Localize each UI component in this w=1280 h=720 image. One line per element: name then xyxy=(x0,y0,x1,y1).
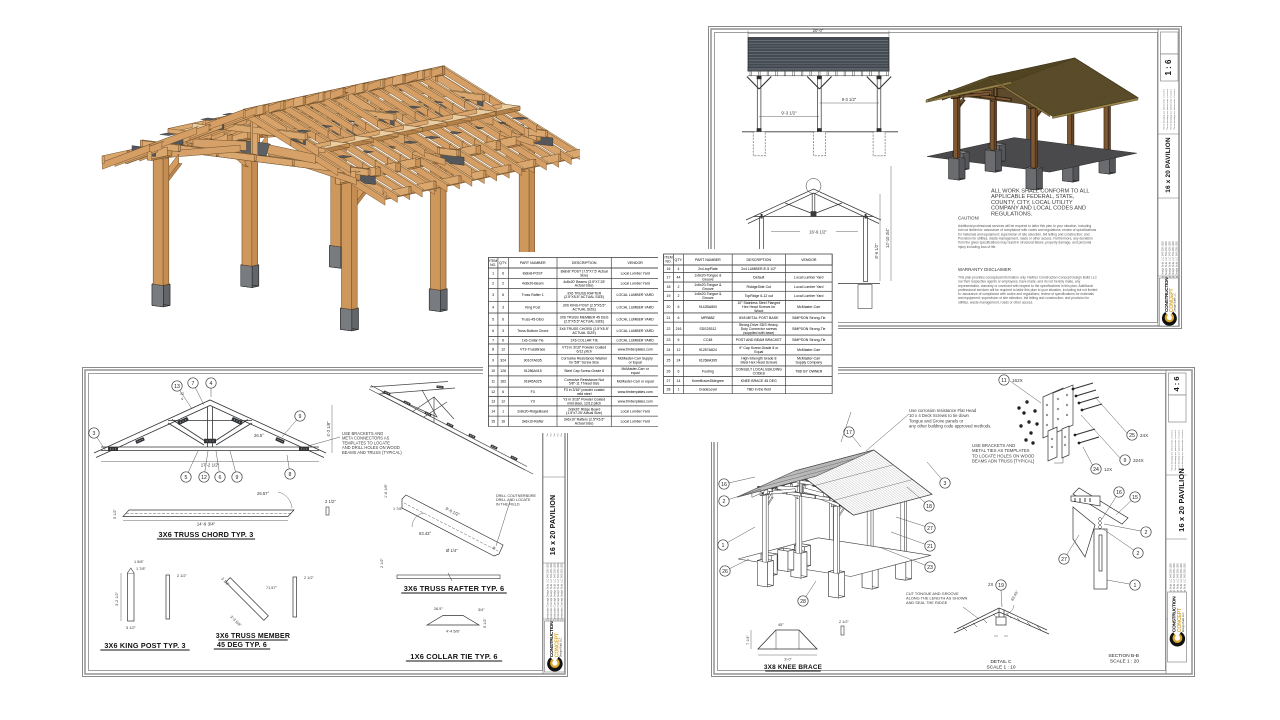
svg-text:9126BA395: 9126BA395 xyxy=(699,359,717,363)
svg-text:Steel Cap Screw-Grade 8: Steel Cap Screw-Grade 8 xyxy=(564,369,604,373)
svg-text:16 x 20 PAVILION: 16 x 20 PAVILION xyxy=(1177,468,1186,532)
svg-text:24: 24 xyxy=(1093,467,1099,473)
svg-text:1 : 6: 1 : 6 xyxy=(1164,59,1173,76)
svg-text:7: 7 xyxy=(192,381,195,387)
svg-text:1 7/8": 1 7/8" xyxy=(136,567,146,571)
svg-text:3: 3 xyxy=(93,431,96,437)
svg-text:Local Lumber Yard: Local Lumber Yard xyxy=(621,409,650,413)
svg-text:24X: 24X xyxy=(1140,433,1148,438)
svg-text:3'-0": 3'-0" xyxy=(784,658,792,662)
svg-text:3: 3 xyxy=(492,293,494,297)
svg-text:6: 6 xyxy=(678,369,680,373)
svg-text:4'-4 5/8": 4'-4 5/8" xyxy=(446,630,461,634)
svg-text:injury including loss of life.: injury including loss of life. xyxy=(958,245,996,249)
svg-text:16'-9 1/2": 16'-9 1/2" xyxy=(809,230,827,235)
svg-text:8'-6 1/2": 8'-6 1/2" xyxy=(874,243,879,259)
svg-text:26.57°: 26.57° xyxy=(257,491,269,496)
svg-text:Local Lumber Yard: Local Lumber Yard xyxy=(621,420,650,424)
svg-text:LOCAL LUMBER YARD: LOCAL LUMBER YARD xyxy=(617,293,655,297)
svg-text:2 1/2": 2 1/2" xyxy=(839,620,849,624)
svg-text:4x8x20-Beam: 4x8x20-Beam xyxy=(522,282,544,286)
svg-text:DESCRIPTION: DESCRIPTION xyxy=(572,261,597,265)
svg-text:4: 4 xyxy=(492,305,494,309)
svg-text:equal: equal xyxy=(631,371,640,375)
svg-text:Truss-45-DEG: Truss-45-DEG xyxy=(521,317,544,321)
svg-text:SCALE 1 : 20: SCALE 1 : 20 xyxy=(1110,659,1139,665)
svg-text:21: 21 xyxy=(927,544,933,550)
svg-text:26.5°: 26.5° xyxy=(254,433,264,438)
svg-text:McMaster-Carr: McMaster-Carr xyxy=(797,348,821,352)
svg-text:126: 126 xyxy=(500,369,506,373)
svg-text:19: 19 xyxy=(998,583,1004,589)
svg-text:MPB88Z: MPB88Z xyxy=(701,316,715,320)
svg-text:Actual Size): Actual Size) xyxy=(575,284,594,288)
svg-text:5 1/2": 5 1/2" xyxy=(126,626,136,630)
svg-text:(1.5″x7.25' Actual Size): (1.5″x7.25' Actual Size) xyxy=(566,411,602,415)
svg-text:DESCRIPTION: DESCRIPTION xyxy=(747,258,772,262)
svg-text:Actual Size): Actual Size) xyxy=(575,422,594,426)
svg-text:14: 14 xyxy=(491,409,495,413)
svg-text:6: 6 xyxy=(219,475,222,481)
svg-text:16 x 20 PAVILION: 16 x 20 PAVILION xyxy=(550,495,557,556)
svg-text:1: 1 xyxy=(722,543,725,549)
svg-text:12: 12 xyxy=(180,392,184,396)
svg-text:3X6 TRUSS RAFTER TYP. 6: 3X6 TRUSS RAFTER TYP. 6 xyxy=(404,584,505,593)
svg-text:ACTUAL SIZE): ACTUAL SIZE) xyxy=(572,331,596,335)
svg-text:BEAMS AND TRUSS (TYPICAL): BEAMS AND TRUSS (TYPICAL) xyxy=(342,450,402,455)
svg-text:6: 6 xyxy=(502,390,504,394)
svg-text:5 1/2": 5 1/2" xyxy=(483,617,487,627)
svg-text:63.43°: 63.43° xyxy=(419,531,431,536)
svg-text:1: 1 xyxy=(492,271,494,275)
svg-text:5/8″-11 Thread Size: 5/8″-11 Thread Size xyxy=(569,382,600,386)
svg-text:18: 18 xyxy=(667,285,671,289)
svg-text:utilities, waste management, r: utilities, waste management, roads or ot… xyxy=(958,300,1033,304)
svg-text:Local Lumber Yard: Local Lumber Yard xyxy=(794,275,823,279)
svg-text:20: 20 xyxy=(667,305,671,309)
svg-text:www.timberplates.com: www.timberplates.com xyxy=(618,347,653,351)
svg-text:9: 9 xyxy=(236,475,239,481)
svg-text:6: 6 xyxy=(502,338,504,342)
svg-text:SECTION B-B: SECTION B-B xyxy=(1108,653,1139,659)
svg-text:25: 25 xyxy=(1129,433,1135,439)
svg-text:3: 3 xyxy=(502,329,504,333)
svg-text:9142BA800: 9142BA800 xyxy=(699,305,717,309)
svg-text:Design Build LLC: Design Build LLC xyxy=(1174,293,1177,312)
svg-text:2x4-topPlate: 2x4-topPlate xyxy=(698,267,718,271)
svg-text:23: 23 xyxy=(927,565,933,571)
svg-text:Equal: Equal xyxy=(754,350,763,354)
svg-text:Construction Concept Design Bu: Construction Concept Design Build LLC 54… xyxy=(561,562,564,620)
svg-text:www.timberplates.com: www.timberplates.com xyxy=(618,390,653,394)
svg-text:6: 6 xyxy=(502,293,504,297)
svg-text:Truss Bottom Chord: Truss Bottom Chord xyxy=(517,329,548,333)
svg-text:12: 12 xyxy=(491,390,495,394)
svg-text:PART NUMBER: PART NUMBER xyxy=(520,261,546,265)
svg-text:Steel Hex Head Screws: Steel Hex Head Screws xyxy=(740,361,777,365)
svg-text:GradeLevel: GradeLevel xyxy=(699,388,717,392)
svg-text:91845A325: 91845A325 xyxy=(524,380,542,384)
svg-text:12'-10 3/4": 12'-10 3/4" xyxy=(885,227,890,247)
svg-text:VT3-TrussBrace: VT3-TrussBrace xyxy=(520,347,545,351)
svg-text:27: 27 xyxy=(1061,557,1067,563)
svg-text:45 DEG TYP. 6: 45 DEG TYP. 6 xyxy=(217,642,267,649)
svg-text:Size): Size) xyxy=(580,273,588,277)
svg-text:Design Build LLC: Design Build LLC xyxy=(558,637,562,657)
svg-text:16: 16 xyxy=(667,267,671,271)
svg-text:King Post: King Post xyxy=(525,305,540,309)
svg-text:2: 2 xyxy=(723,499,726,505)
svg-text:12: 12 xyxy=(677,348,681,352)
svg-text:16: 16 xyxy=(721,482,727,488)
svg-text:1: 1 xyxy=(678,388,680,392)
svg-text:1 5/8": 1 5/8" xyxy=(134,560,144,564)
svg-text:17'-2 1/2": 17'-2 1/2" xyxy=(201,463,220,468)
svg-text:NO.: NO. xyxy=(665,259,671,263)
svg-text:11: 11 xyxy=(491,380,495,384)
svg-text:Groove: Groove xyxy=(702,287,714,291)
svg-text:3x6x10-Rafter: 3x6x10-Rafter xyxy=(522,420,545,424)
svg-text:4: 4 xyxy=(678,267,680,271)
svg-text:2X: 2X xyxy=(988,582,993,587)
svg-text:IN THE FIELD: IN THE FIELD xyxy=(496,502,520,506)
svg-text:16: 16 xyxy=(1116,490,1122,496)
svg-text:25: 25 xyxy=(667,359,671,363)
svg-text:McMaster-Carr: McMaster-Carr xyxy=(797,305,821,309)
svg-text:2: 2 xyxy=(1145,530,1148,536)
svg-text:2: 2 xyxy=(502,282,504,286)
svg-text:www.timberplates.com: www.timberplates.com xyxy=(618,399,653,403)
svg-text:CC48: CC48 xyxy=(703,338,712,342)
svg-text:LOCAL LUMBER YARD: LOCAL LUMBER YARD xyxy=(617,317,655,321)
svg-text:13: 13 xyxy=(491,399,495,403)
svg-text:13: 13 xyxy=(174,384,180,390)
svg-text:1: 1 xyxy=(1134,583,1137,589)
svg-text:QTY.: QTY. xyxy=(499,261,507,265)
svg-text:23: 23 xyxy=(667,338,671,342)
svg-text:324X: 324X xyxy=(1133,458,1144,463)
svg-text:6/12 pitch: 6/12 pitch xyxy=(577,349,592,353)
svg-text:AND SEAL THE RIDGE: AND SEAL THE RIDGE xyxy=(906,600,948,605)
svg-text:2: 2 xyxy=(1137,551,1140,557)
svg-text:SIMPSON Strong-Tie: SIMPSON Strong-Tie xyxy=(792,338,825,342)
svg-text:2 1/2": 2 1/2" xyxy=(304,576,314,580)
svg-text:RiddgeSide Cut: RiddgeSide Cut xyxy=(747,285,772,289)
svg-text:3/4": 3/4" xyxy=(478,608,485,612)
svg-text:45°: 45° xyxy=(778,623,784,627)
svg-text:mild steel: mild steel xyxy=(577,392,592,396)
svg-text:3X6 TRUSS CHORD TYP. 3: 3X6 TRUSS CHORD TYP. 3 xyxy=(159,530,254,539)
svg-text:1: 1 xyxy=(502,409,504,413)
svg-text:REGULATIONS.: REGULATIONS. xyxy=(991,211,1033,217)
svg-text:TBD BY OWNER: TBD BY OWNER xyxy=(795,369,822,373)
svg-text:16: 16 xyxy=(501,420,505,424)
svg-text:2x4 LUMBER 8'-5 1/2″: 2x4 LUMBER 8'-5 1/2″ xyxy=(741,267,777,271)
svg-text:8X8 METAL POST BASE: 8X8 METAL POST BASE xyxy=(739,316,779,320)
svg-text:1X6 COLLAR TIE TYP. 6: 1X6 COLLAR TIE TYP. 6 xyxy=(410,652,497,661)
svg-text:6: 6 xyxy=(492,329,494,333)
svg-text:12: 12 xyxy=(501,347,505,351)
svg-text:BEAMS ADN TRUSS [TYPICAL]: BEAMS ADN TRUSS [TYPICAL] xyxy=(972,459,1034,464)
svg-text:16 x 20 PAVILION: 16 x 20 PAVILION xyxy=(1165,137,1172,193)
svg-text:9: 9 xyxy=(1124,458,1127,464)
svg-text:2: 2 xyxy=(678,285,680,289)
svg-text:15: 15 xyxy=(1132,495,1138,501)
svg-text:8: 8 xyxy=(289,472,292,478)
svg-text:20'-0": 20'-0" xyxy=(813,28,824,33)
svg-text:26: 26 xyxy=(667,369,671,373)
svg-text:These drawings are instruments: These drawings are instruments of servic… xyxy=(1178,429,1181,471)
svg-text:These drawings are instruments: These drawings are instruments of servic… xyxy=(1174,429,1177,471)
svg-text:mild steel, 12/12 pitch: mild steel, 12/12 pitch xyxy=(567,401,601,405)
svg-text:(supplied with base): (supplied with base) xyxy=(743,331,774,335)
svg-text:4: 4 xyxy=(181,397,183,401)
svg-text:F3: F3 xyxy=(531,390,535,394)
svg-text:any other building code approv: any other building code approved methods… xyxy=(909,424,991,429)
svg-text:1x6-Collar-Tie: 1x6-Collar-Tie xyxy=(522,338,544,342)
svg-text:2 1/2": 2 1/2" xyxy=(325,499,336,504)
svg-text:324: 324 xyxy=(500,358,506,362)
svg-text:10: 10 xyxy=(491,369,495,373)
svg-text:162: 162 xyxy=(500,380,506,384)
svg-text:KneeBrace45degree: KneeBrace45degree xyxy=(692,379,724,383)
svg-text:ACTUAL SIZE): ACTUAL SIZE) xyxy=(572,307,596,311)
svg-text:26.5°: 26.5° xyxy=(434,607,443,611)
svg-text:7: 7 xyxy=(492,338,494,342)
svg-text:3: 3 xyxy=(502,305,504,309)
svg-text:Footing: Footing xyxy=(702,369,714,373)
svg-text:Local Lumber Yard: Local Lumber Yard xyxy=(621,271,650,275)
svg-text:3X6 TRUSS MEMBER: 3X6 TRUSS MEMBER xyxy=(216,633,290,640)
svg-text:9: 9 xyxy=(299,414,302,420)
svg-text:17: 17 xyxy=(667,275,671,279)
svg-text:Design Build LLC: Design Build LLC xyxy=(1181,612,1185,632)
svg-text:21: 21 xyxy=(667,316,671,320)
svg-text:CODES: CODES xyxy=(753,371,766,375)
svg-text:POST AND BEAM BRACKET: POST AND BEAM BRACKET xyxy=(736,338,783,342)
svg-text:(2.5″X5.5″ ACTUAL SIZE): (2.5″X5.5″ ACTUAL SIZE) xyxy=(564,319,604,323)
svg-text:28: 28 xyxy=(667,388,671,392)
svg-text:8x8x8-POST: 8x8x8-POST xyxy=(523,271,544,275)
svg-text:12: 12 xyxy=(201,475,207,481)
svg-text:4 : 6: 4 : 6 xyxy=(1172,376,1181,391)
svg-text:LOCAL LUMBER YARD: LOCAL LUMBER YARD xyxy=(617,305,655,309)
svg-text:Local Lumber Yard: Local Lumber Yard xyxy=(794,285,823,289)
svg-text:These drawings are instruments: These drawings are instruments of servic… xyxy=(1173,88,1176,130)
svg-text:These drawings are instruments: These drawings are instruments of servic… xyxy=(1166,88,1169,130)
svg-text:KNEE BRACE 45 DEG: KNEE BRACE 45 DEG xyxy=(741,379,777,383)
svg-text:QTY.: QTY. xyxy=(675,258,683,262)
svg-text:6: 6 xyxy=(678,338,680,342)
svg-text:PART NUMBER: PART NUMBER xyxy=(695,258,721,262)
svg-text:6: 6 xyxy=(502,271,504,275)
svg-text:SDS25312: SDS25312 xyxy=(699,327,716,331)
svg-text:These drawings are instruments: These drawings are instruments of servic… xyxy=(1171,429,1174,471)
svg-text:3'-2 1/2": 3'-2 1/2" xyxy=(115,591,119,606)
svg-text:2 1/2": 2 1/2" xyxy=(177,574,187,578)
svg-text:Default: Default xyxy=(753,275,764,279)
svg-text:17: 17 xyxy=(846,430,852,436)
svg-text:1'-6 1/8": 1'-6 1/8" xyxy=(384,483,388,498)
svg-text:4'-2 1/8": 4'-2 1/8" xyxy=(326,421,331,437)
svg-text:90107A035: 90107A035 xyxy=(524,358,542,362)
svg-text:VENDOR: VENDOR xyxy=(628,261,644,265)
svg-text:LOCAL LUMBER YARD: LOCAL LUMBER YARD xyxy=(617,329,655,333)
svg-text:27: 27 xyxy=(927,526,933,532)
svg-text:McMaster-Carr or equal: McMaster-Carr or equal xyxy=(617,380,654,384)
svg-text:SCALE 1 : 10: SCALE 1 : 10 xyxy=(986,665,1015,671)
svg-text:1 7/8": 1 7/8" xyxy=(393,507,403,511)
svg-text:for 5/8″ Screw Size: for 5/8″ Screw Size xyxy=(569,360,599,364)
svg-text:26: 26 xyxy=(722,569,728,575)
svg-text:Ø 1/4": Ø 1/4" xyxy=(446,548,458,553)
svg-text:These drawings are instruments: These drawings are instruments of servic… xyxy=(1170,88,1173,130)
svg-text:12X: 12X xyxy=(1104,467,1112,472)
svg-text:5: 5 xyxy=(185,475,188,481)
svg-text:NO.: NO. xyxy=(490,263,496,267)
svg-text:Groove: Groove xyxy=(702,277,714,281)
svg-text:These drawings are instruments: These drawings are instruments of servic… xyxy=(1181,429,1184,471)
svg-text:8: 8 xyxy=(492,347,494,351)
svg-text:22: 22 xyxy=(667,327,671,331)
svg-text:14: 14 xyxy=(677,379,681,383)
svg-text:WARRANTY DISCLAIMER: WARRANTY DISCLAIMER xyxy=(958,267,1011,272)
svg-text:9-3 1/2": 9-3 1/2" xyxy=(842,97,857,102)
svg-text:Y3: Y3 xyxy=(531,399,535,403)
svg-text:2: 2 xyxy=(678,294,680,298)
svg-text:24: 24 xyxy=(677,359,681,363)
svg-text:9: 9 xyxy=(492,358,494,362)
svg-text:Wood: Wood xyxy=(754,309,763,313)
svg-text:Local Lumber Yard: Local Lumber Yard xyxy=(794,294,823,298)
svg-text:TBD in the field: TBD in the field xyxy=(747,388,771,392)
svg-text:91286A415: 91286A415 xyxy=(524,369,542,373)
svg-text:(2.5″X5.5″ ACTUAL SIZE): (2.5″X5.5″ ACTUAL SIZE) xyxy=(564,295,604,299)
svg-text:44: 44 xyxy=(677,275,681,279)
svg-text:3: 3 xyxy=(944,481,947,487)
svg-text:VENDOR: VENDOR xyxy=(801,258,817,262)
svg-text:5 1/2": 5 1/2" xyxy=(113,508,117,518)
svg-text:2x8x20-RidgeBoard: 2x8x20-RidgeBoard xyxy=(517,409,548,413)
svg-text:6: 6 xyxy=(678,305,680,309)
svg-text:CAUTION!: CAUTION! xyxy=(958,216,979,221)
svg-text:216: 216 xyxy=(676,327,682,331)
svg-text:9'-3 1/2": 9'-3 1/2" xyxy=(781,111,797,116)
svg-text:Groove: Groove xyxy=(702,296,714,300)
svg-text:91257A824: 91257A824 xyxy=(699,348,717,352)
svg-text:2 1/2": 2 1/2" xyxy=(380,557,384,567)
svg-text:5: 5 xyxy=(492,317,494,321)
svg-text:TopRidge 6-12 cut: TopRidge 6-12 cut xyxy=(745,294,773,298)
svg-text:Supply Company: Supply Company xyxy=(795,361,822,365)
svg-text:3X8 KNEE BRACE: 3X8 KNEE BRACE xyxy=(764,664,823,671)
svg-text:DETAIL C: DETAIL C xyxy=(990,659,1012,665)
svg-text:27: 27 xyxy=(667,379,671,383)
svg-text:2: 2 xyxy=(492,282,494,286)
svg-text:28: 28 xyxy=(800,599,806,605)
svg-text:162X: 162X xyxy=(1012,378,1023,383)
svg-text:71.57°: 71.57° xyxy=(266,586,278,590)
svg-text:Local Lumber Yard: Local Lumber Yard xyxy=(621,282,650,286)
svg-text:These drawings are instruments: These drawings are instruments of servic… xyxy=(1163,88,1166,130)
svg-text:6: 6 xyxy=(678,316,680,320)
svg-text:3X6 KING POST TYP. 3: 3X6 KING POST TYP. 3 xyxy=(104,641,185,650)
svg-text:SIMPSON Strong-Tie: SIMPSON Strong-Tie xyxy=(792,327,825,331)
svg-text:24: 24 xyxy=(667,348,671,352)
svg-text:15: 15 xyxy=(491,420,495,424)
svg-text:1X6 COLLAR TIE: 1X6 COLLAR TIE xyxy=(570,338,598,342)
svg-text:14'-9 3/4": 14'-9 3/4" xyxy=(197,522,216,527)
svg-text:18: 18 xyxy=(926,504,932,510)
svg-text:19: 19 xyxy=(667,294,671,298)
svg-text:11: 11 xyxy=(1001,378,1006,384)
svg-text:4: 4 xyxy=(210,381,213,387)
svg-text:7 1/4": 7 1/4" xyxy=(746,634,750,644)
svg-text:LOCAL LUMBER YARD: LOCAL LUMBER YARD xyxy=(617,338,655,342)
svg-text:or Equal: or Equal xyxy=(629,360,642,364)
svg-text:6: 6 xyxy=(502,317,504,321)
svg-text:SIMPSON Strong-Tie: SIMPSON Strong-Tie xyxy=(792,316,825,320)
svg-text:Truss Rafter 1: Truss Rafter 1 xyxy=(522,293,544,297)
svg-text:12: 12 xyxy=(501,399,505,403)
